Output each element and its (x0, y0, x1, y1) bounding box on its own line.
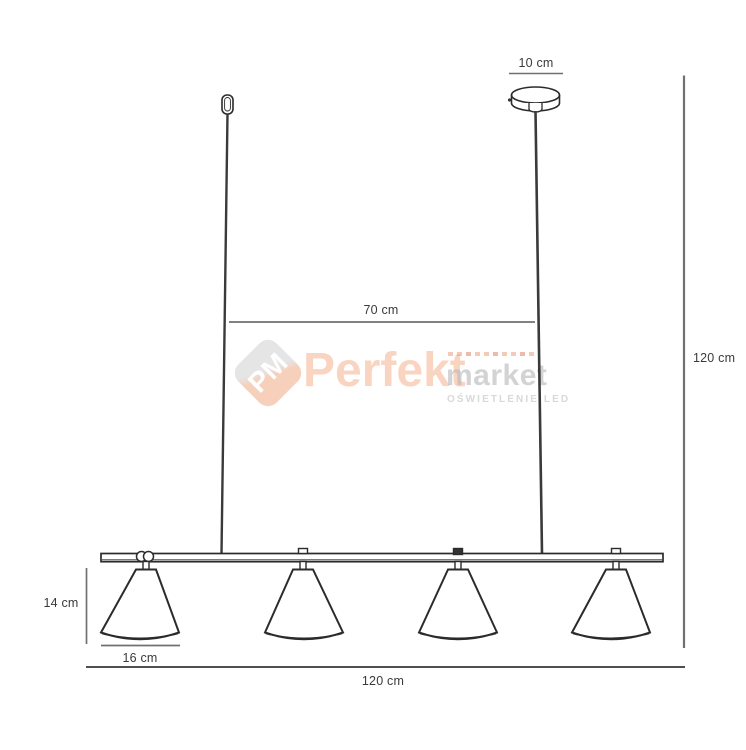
label-total-width: 120 cm (362, 674, 404, 688)
label-shade-width: 16 cm (122, 651, 157, 665)
dimension-labels: 10 cm 70 cm 120 cm 14 cm 16 cm 120 cm (0, 0, 746, 750)
label-shade-height: 14 cm (43, 596, 78, 610)
label-total-height: 120 cm (693, 351, 735, 365)
label-suspension-span: 70 cm (363, 303, 398, 317)
product-dimension-diagram: PM Perfekt market OŚWIETLENIE LED (0, 0, 746, 750)
label-canopy-width: 10 cm (518, 56, 553, 70)
